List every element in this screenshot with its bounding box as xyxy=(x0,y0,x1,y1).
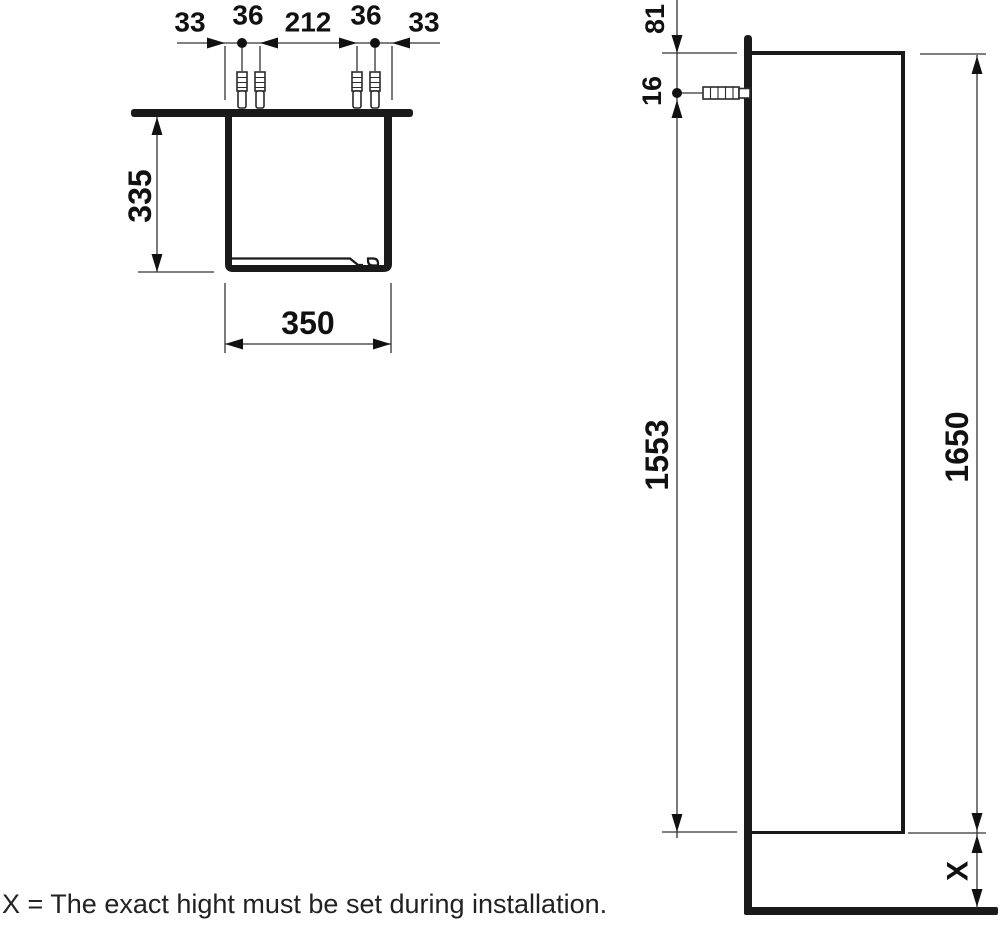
arrow-left-icon xyxy=(392,38,410,49)
dimension-dot xyxy=(370,38,380,48)
arrow-up-icon xyxy=(672,100,683,118)
dim-label-212: 212 xyxy=(285,7,332,38)
arrow-down-icon xyxy=(972,813,983,831)
installation-drawing: 33 36 212 36 33 xyxy=(0,0,1000,934)
wall-plan xyxy=(131,109,413,117)
wall-anchor-icon xyxy=(352,72,362,108)
wall-anchor-icon xyxy=(703,87,750,99)
arrow-right-icon xyxy=(373,339,391,350)
floor-line xyxy=(744,907,998,915)
arrow-right-icon xyxy=(207,38,225,49)
arrow-down-icon xyxy=(152,254,163,272)
door-edge-line xyxy=(232,259,363,266)
technical-drawing-page: 33 36 212 36 33 xyxy=(0,0,1000,934)
dim-label-x: X xyxy=(942,861,975,881)
dim-label-33-left: 33 xyxy=(174,7,205,38)
dim-label-1553: 1553 xyxy=(639,419,675,490)
arrow-down-icon xyxy=(672,35,683,53)
wall-side xyxy=(744,35,752,915)
dimension-dot xyxy=(237,38,247,48)
dim-label-1650: 1650 xyxy=(939,411,975,482)
cabinet-plan xyxy=(225,117,392,272)
dim-label-350: 350 xyxy=(281,305,334,341)
dim-label-36-right: 36 xyxy=(350,0,381,31)
arrow-left-icon xyxy=(260,38,278,49)
arrow-left-icon xyxy=(225,339,243,350)
arrow-right-icon xyxy=(339,38,357,49)
wall-anchor-icon xyxy=(370,72,380,108)
dim-label-81: 81 xyxy=(640,4,670,34)
door-gap-detail xyxy=(368,259,378,266)
caption-text: X = The exact hight must be set during i… xyxy=(2,889,762,920)
arrow-up-icon xyxy=(972,835,983,853)
dim-label-33-right: 33 xyxy=(408,7,439,38)
side-view: 81 16 1553 1650 X xyxy=(637,0,998,915)
dim-label-16: 16 xyxy=(637,76,667,106)
arrow-up-icon xyxy=(972,56,983,74)
wall-anchor-icon xyxy=(255,72,265,108)
dim-label-335: 335 xyxy=(122,169,158,222)
wall-anchor-icon xyxy=(237,72,247,108)
dimension-dot xyxy=(672,88,682,98)
arrow-up-icon xyxy=(152,117,163,135)
plan-view: 33 36 212 36 33 xyxy=(122,0,440,353)
dim-label-36-left: 36 xyxy=(232,0,263,31)
arrow-down-icon xyxy=(972,889,983,907)
arrow-down-icon xyxy=(672,814,683,832)
